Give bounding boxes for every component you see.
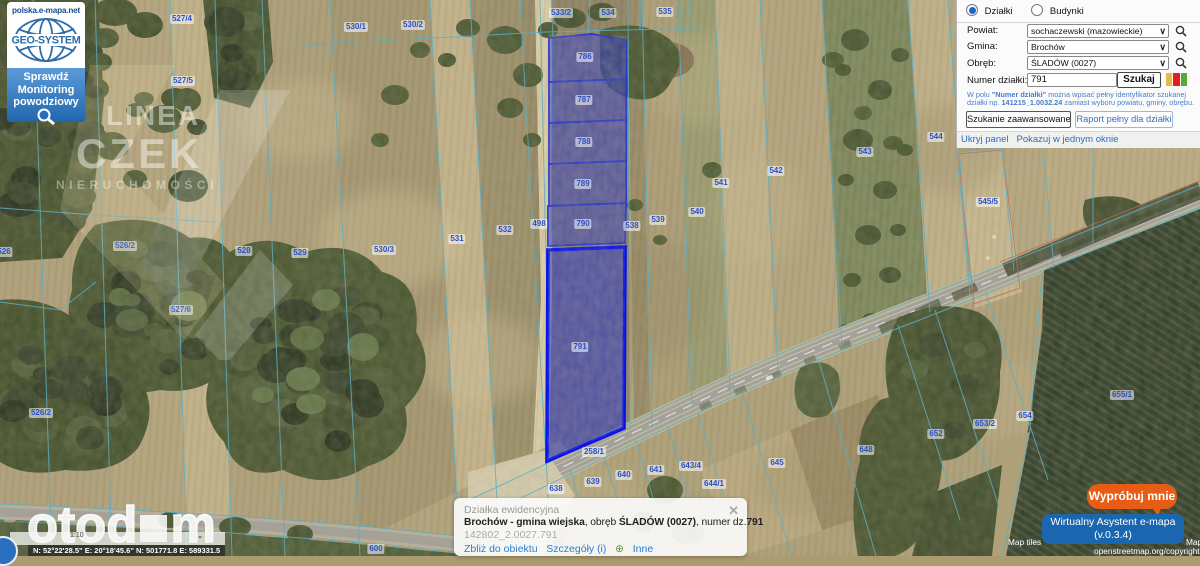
- svg-text:GEO-SYSTEM: GEO-SYSTEM: [12, 35, 81, 47]
